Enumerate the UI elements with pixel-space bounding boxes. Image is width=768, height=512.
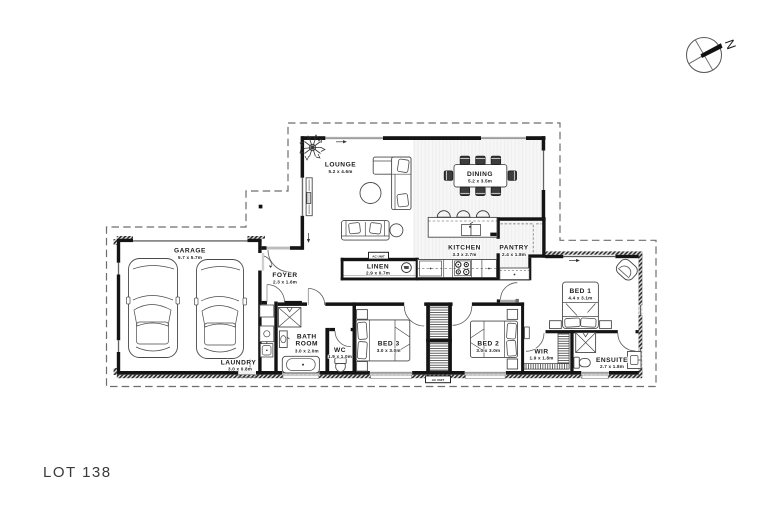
svg-text:3.0 x 3.0m: 3.0 x 3.0m <box>476 348 500 353</box>
svg-text:FOYER: FOYER <box>272 272 297 279</box>
svg-text:AC UNIT: AC UNIT <box>432 378 445 382</box>
svg-text:GARAGE: GARAGE <box>174 248 206 255</box>
svg-text:5.2 x 3.5m: 5.2 x 3.5m <box>468 179 492 184</box>
svg-text:3.0 x 3.0m: 3.0 x 3.0m <box>377 348 401 353</box>
svg-text:3.0 x 2.0m: 3.0 x 2.0m <box>295 349 319 354</box>
svg-text:2.7 x 1.8m: 2.7 x 1.8m <box>600 364 624 369</box>
svg-text:LINEN: LINEN <box>367 264 389 271</box>
svg-text:1.9 x 1.0m: 1.9 x 1.0m <box>328 354 352 359</box>
svg-text:AC UNIT: AC UNIT <box>372 255 385 259</box>
svg-text:2.4 x 1.8m: 2.4 x 1.8m <box>502 252 526 257</box>
svg-text:4.4 x 3.1m: 4.4 x 3.1m <box>568 296 592 301</box>
svg-text:ENSUITE: ENSUITE <box>596 357 628 364</box>
svg-text:BED 2: BED 2 <box>477 341 499 348</box>
svg-text:BED 1: BED 1 <box>569 288 591 295</box>
svg-text:PANTRY: PANTRY <box>499 245 528 252</box>
svg-text:5.7 x 5.7m: 5.7 x 5.7m <box>178 255 202 260</box>
svg-text:BED 3: BED 3 <box>378 341 400 348</box>
svg-text:3.0 x 0.8m: 3.0 x 0.8m <box>228 367 252 372</box>
svg-text:LOT 138: LOT 138 <box>43 464 112 481</box>
svg-text:ROOM: ROOM <box>296 341 319 348</box>
svg-text:KITCHEN: KITCHEN <box>448 245 481 252</box>
svg-text:DINING: DINING <box>467 171 493 178</box>
svg-text:2.9 x 0.7m: 2.9 x 0.7m <box>366 271 390 276</box>
svg-text:LOUNGE: LOUNGE <box>325 162 356 169</box>
svg-text:BATH: BATH <box>297 334 317 341</box>
svg-text:2.3 x 1.6m: 2.3 x 1.6m <box>273 280 297 285</box>
svg-text:WH: WH <box>404 266 408 270</box>
svg-text:3.3 x 2.7m: 3.3 x 2.7m <box>453 252 477 257</box>
svg-text:WIR: WIR <box>534 349 548 356</box>
svg-text:5.2 x 4.6m: 5.2 x 4.6m <box>329 169 353 174</box>
svg-text:LAUNDRY: LAUNDRY <box>221 360 257 367</box>
svg-text:1.9 x 1.8m: 1.9 x 1.8m <box>530 356 554 361</box>
